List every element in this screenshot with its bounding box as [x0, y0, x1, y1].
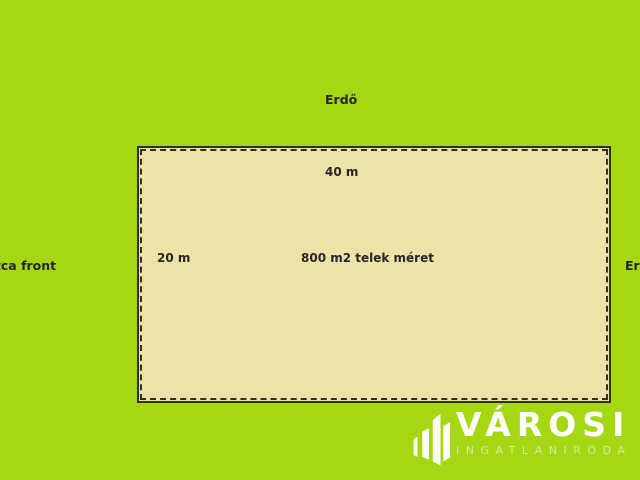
buildings-icon — [404, 406, 452, 470]
plot-width-dimension: 40 m — [325, 165, 358, 179]
surrounding-label-forest-top: Erdő — [325, 92, 357, 107]
surrounding-label-forest-right: Erdő — [625, 258, 640, 273]
land-plot-rectangle: 40 m 20 m 800 m2 telek méret — [137, 146, 611, 403]
surrounding-label-street-front: utca front — [0, 258, 56, 273]
plot-depth-dimension: 20 m — [157, 251, 190, 265]
plot-boundary-dashed-line — [140, 149, 608, 400]
agency-tagline: INGATLANIRODA — [456, 444, 631, 457]
plot-area-size: 800 m2 telek méret — [301, 251, 434, 265]
agency-logo: VÁROSI INGATLANIRODA — [404, 406, 631, 470]
agency-logo-text: VÁROSI INGATLANIRODA — [456, 406, 631, 457]
agency-name: VÁROSI — [456, 408, 631, 442]
